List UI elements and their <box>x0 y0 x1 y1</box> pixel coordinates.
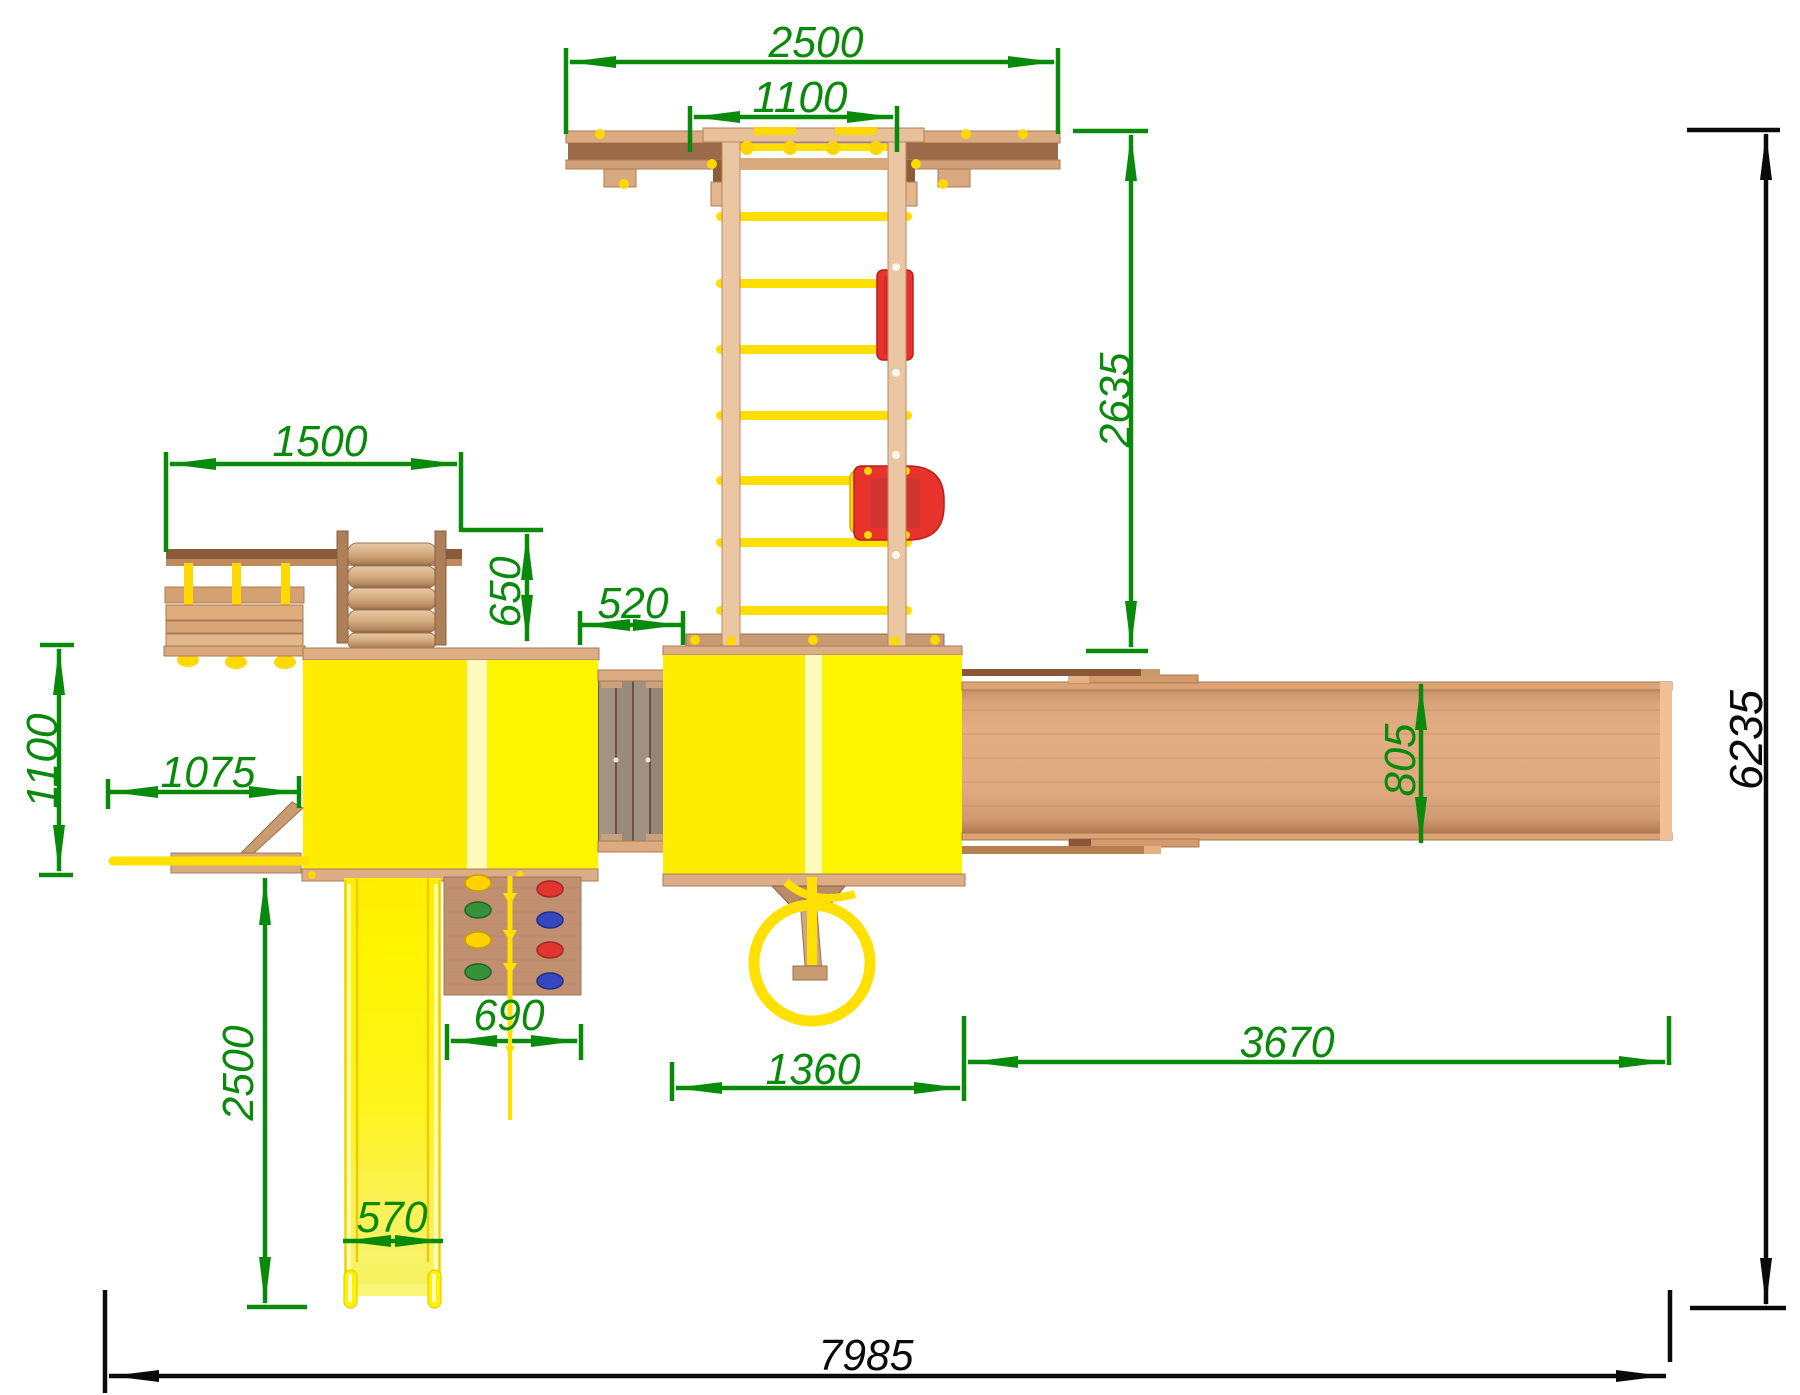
svg-text:1500: 1500 <box>273 417 369 466</box>
svg-text:805: 805 <box>1376 723 1425 797</box>
svg-text:2635: 2635 <box>1091 352 1140 448</box>
svg-text:570: 570 <box>357 1193 429 1242</box>
svg-text:650: 650 <box>481 556 530 628</box>
svg-text:690: 690 <box>474 991 546 1040</box>
svg-text:520: 520 <box>598 579 670 628</box>
svg-text:1360: 1360 <box>766 1045 862 1094</box>
svg-text:1100: 1100 <box>18 713 67 809</box>
svg-text:7985: 7985 <box>819 1331 915 1380</box>
svg-text:6235: 6235 <box>1720 690 1772 790</box>
svg-text:2500: 2500 <box>768 18 864 67</box>
svg-text:1075: 1075 <box>161 748 257 797</box>
svg-text:3670: 3670 <box>1240 1018 1336 1067</box>
svg-text:1100: 1100 <box>753 73 849 122</box>
svg-text:2500: 2500 <box>214 1025 263 1121</box>
